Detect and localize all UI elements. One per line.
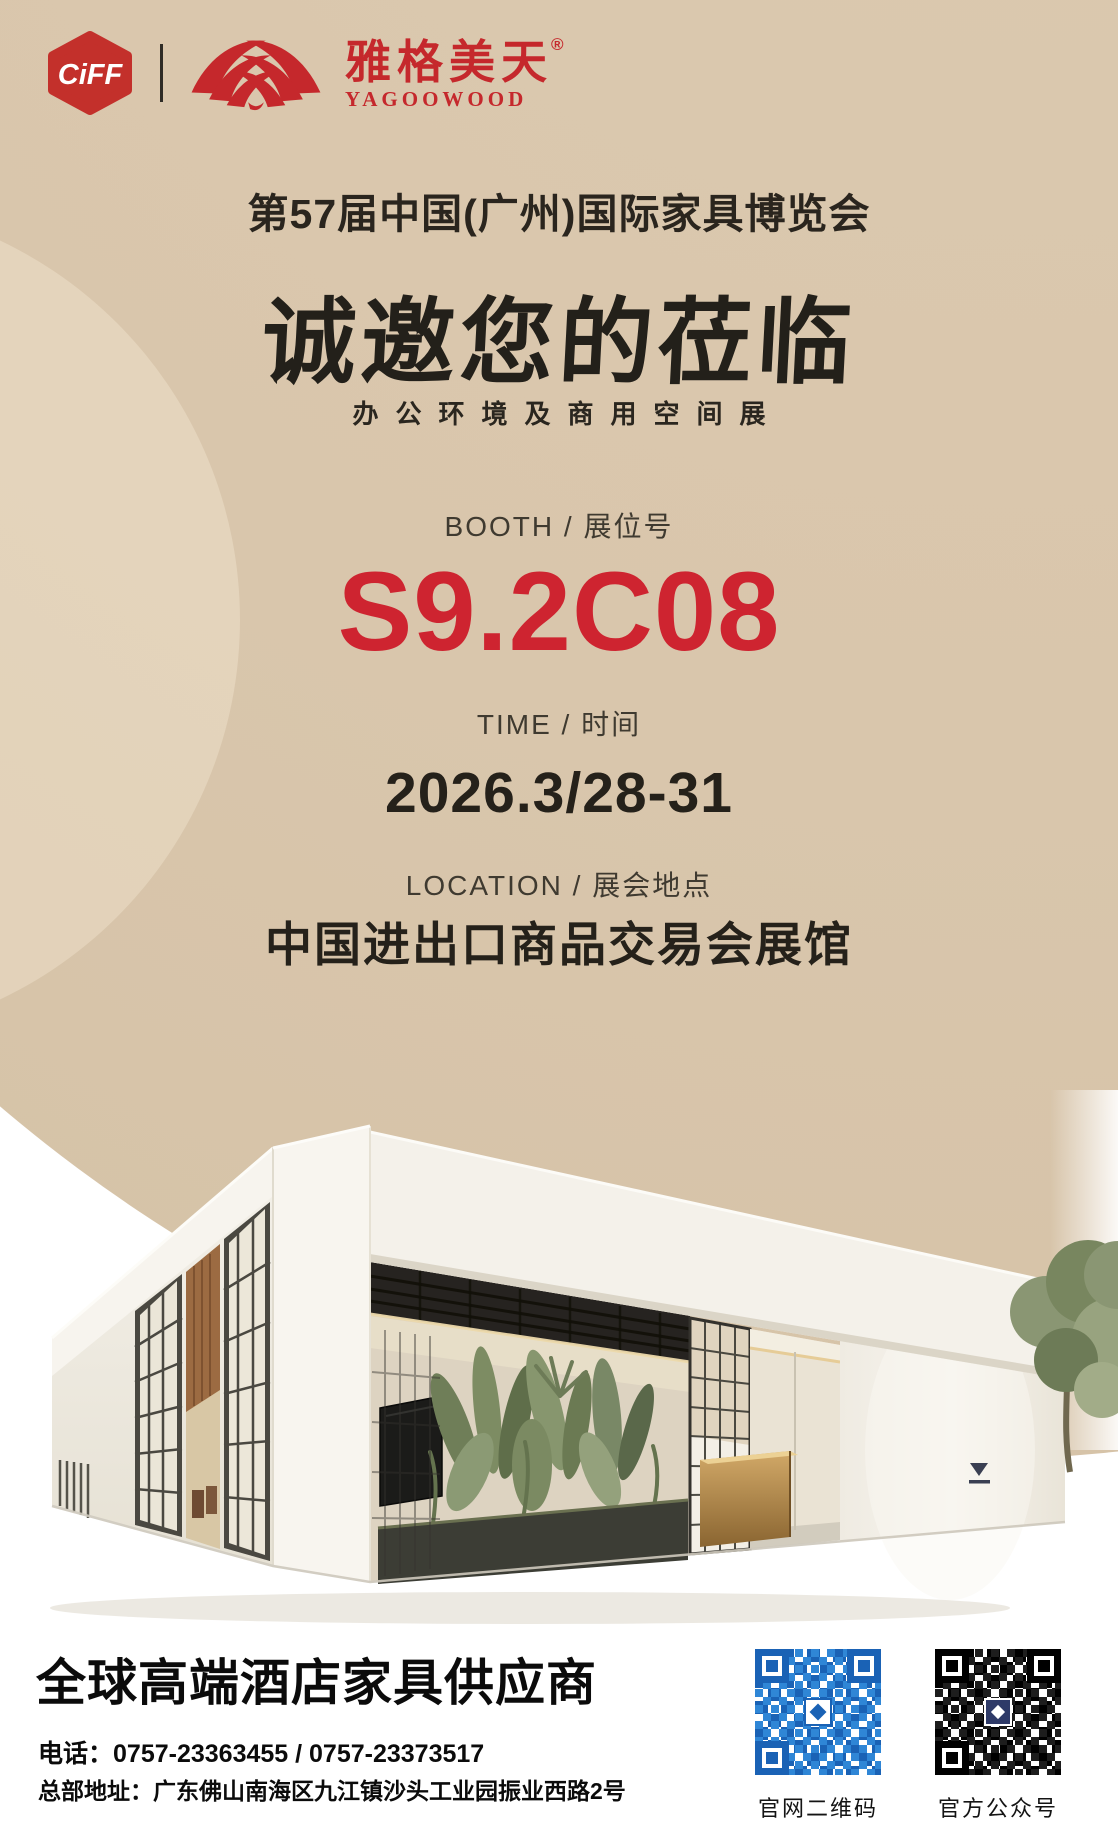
booth-number: S9.2C08 bbox=[0, 556, 1118, 668]
qr-finder-icon bbox=[935, 1649, 969, 1683]
registered-mark: ® bbox=[551, 35, 564, 54]
wechat-qr-group: 官方公众号 bbox=[928, 1642, 1068, 1823]
website-qr-group: 官网二维码 bbox=[748, 1642, 888, 1823]
invitation-headline: 诚邀您的莅临 bbox=[0, 296, 1118, 390]
company-tagline: 全球高端酒店家具供应商 bbox=[36, 1658, 597, 1708]
ciff-logo-icon: CiFF bbox=[44, 30, 136, 116]
phone-numbers: 0757-23363455 / 0757-23373517 bbox=[113, 1740, 484, 1768]
event-title: 第57届中国(广州)国际家具博览会 bbox=[0, 194, 1118, 235]
corner-pillar bbox=[273, 1126, 370, 1582]
showroom-building-photo bbox=[0, 1060, 1118, 1640]
phone-label: 电话： bbox=[38, 1740, 113, 1768]
location-label: LOCATION / 展会地点 bbox=[0, 872, 1118, 900]
qr-finder-icon bbox=[847, 1649, 881, 1683]
qr-finder-icon bbox=[935, 1741, 969, 1775]
ground-shadow bbox=[50, 1592, 1010, 1624]
qr-center-logo-icon bbox=[804, 1698, 832, 1726]
brand-name-cn: 雅格美天® bbox=[345, 36, 564, 85]
event-dates: 2026.3/28-31 bbox=[0, 765, 1118, 822]
wechat-qr-label: 官方公众号 bbox=[928, 1791, 1068, 1823]
venue-name: 中国进出口商品交易会展馆 bbox=[0, 921, 1118, 968]
address-value: 广东佛山南海区九江镇沙头工业园振业西路2号 bbox=[153, 1778, 626, 1804]
reception-counter bbox=[700, 1451, 798, 1547]
brand-wordmark: 雅格美天® YAGOOWOOD bbox=[345, 36, 564, 110]
interior-opening bbox=[370, 1262, 690, 1584]
brand-name-en: YAGOOWOOD bbox=[345, 89, 527, 110]
ciff-logo-text: CiFF bbox=[58, 59, 124, 91]
time-label: TIME / 时间 bbox=[0, 711, 1118, 739]
address-label: 总部地址： bbox=[38, 1778, 153, 1804]
event-subtitle: 办公环境及商用空间展 bbox=[0, 401, 1118, 427]
website-qr-label: 官网二维码 bbox=[748, 1791, 888, 1823]
qr-center-logo-icon bbox=[984, 1698, 1012, 1726]
address-line: 总部地址：广东佛山南海区九江镇沙头工业园振业西路2号 bbox=[38, 1780, 626, 1803]
website-qr-code bbox=[748, 1642, 888, 1782]
tv-screen bbox=[380, 1396, 442, 1506]
logo-divider bbox=[160, 44, 163, 102]
qr-finder-icon bbox=[755, 1741, 789, 1775]
brand-header: CiFF 雅格美天® YAGOOWOOD bbox=[44, 30, 564, 116]
yagoo-wings-icon bbox=[187, 32, 325, 114]
exhibition-invitation-poster: CiFF 雅格美天® YAGOOWOOD 第57届中国(广州)国际家具博览会 诚… bbox=[0, 0, 1118, 1840]
qr-finder-icon bbox=[755, 1649, 789, 1683]
booth-label: BOOTH / 展位号 bbox=[0, 513, 1118, 541]
wechat-qr-code bbox=[928, 1642, 1068, 1782]
phone-line: 电话：0757-23363455 / 0757-23373517 bbox=[38, 1742, 484, 1767]
qr-finder-icon bbox=[1027, 1649, 1061, 1683]
